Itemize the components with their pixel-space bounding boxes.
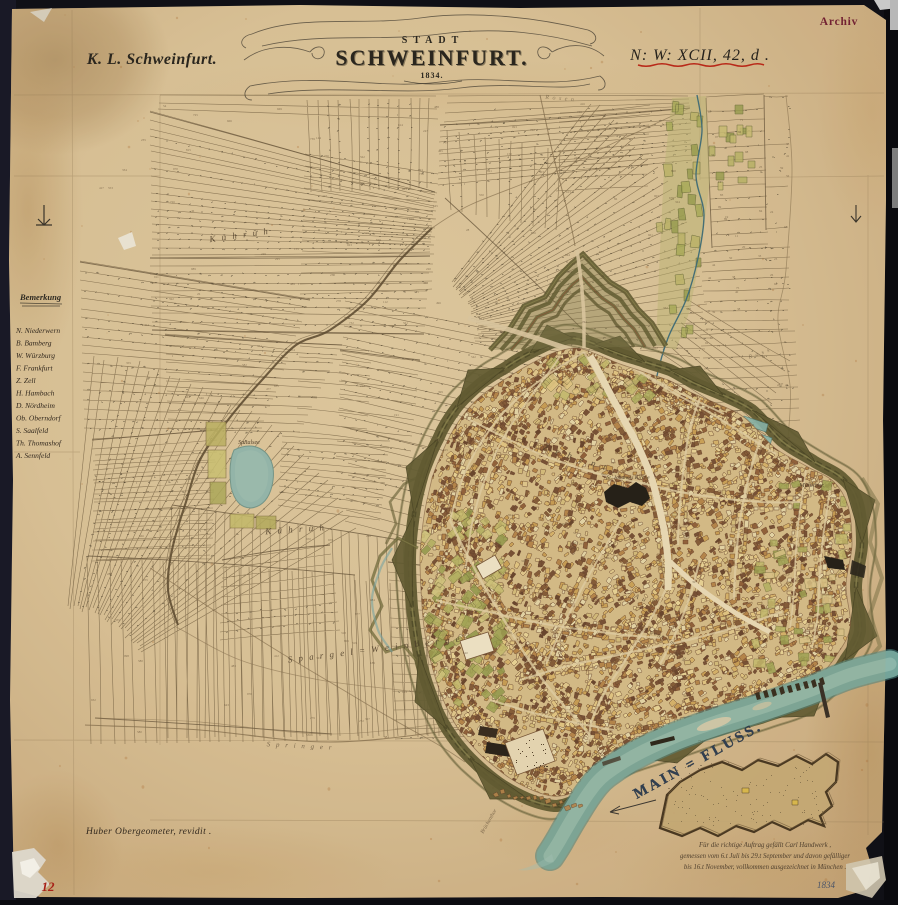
svg-text:N: W: XCII, 42, d .: N: W: XCII, 42, d .	[629, 47, 770, 64]
svg-text:12: 12	[42, 879, 56, 894]
svg-text:1834.: 1834.	[421, 71, 444, 80]
svg-text:SCHWEINFURT.: SCHWEINFURT.	[335, 45, 528, 70]
svg-text:Z. Zell: Z. Zell	[16, 376, 36, 385]
svg-text:S. Saalfeld: S. Saalfeld	[16, 426, 48, 435]
svg-text:bis 16.t November, vollkommen: bis 16.t November, vollkommen ausgezeich…	[684, 864, 847, 871]
svg-text:K. L. Schweinfurt.: K. L. Schweinfurt.	[86, 51, 217, 68]
svg-text:W. Würzburg: W. Würzburg	[16, 351, 55, 360]
svg-text:1834: 1834	[817, 880, 836, 890]
svg-text:N. Niederwern: N. Niederwern	[15, 326, 60, 335]
svg-text:Ob. Oberndorf: Ob. Oberndorf	[16, 414, 61, 423]
svg-text:Bemerkung: Bemerkung	[19, 292, 62, 302]
svg-text:A. Sennfeld: A. Sennfeld	[15, 451, 50, 460]
svg-text:gemessen vom 6.t Juli bis 29.t: gemessen vom 6.t Juli bis 29.t September…	[680, 853, 850, 860]
svg-text:F. Frankfurt: F. Frankfurt	[15, 364, 53, 373]
svg-text:Archiv: Archiv	[820, 16, 858, 28]
svg-text:Huber Obergeometer, revidit .: Huber Obergeometer, revidit .	[85, 827, 212, 837]
svg-text:D. Nördheim: D. Nördheim	[15, 401, 55, 410]
svg-text:H. Hambach: H. Hambach	[15, 389, 55, 398]
svg-text:Th. Thomashof: Th. Thomashof	[16, 439, 62, 448]
svg-text:B. Bamberg: B. Bamberg	[16, 339, 52, 348]
svg-text:Für die richtige Auftrag gefäl: Für die richtige Auftrag gefällt Carl Ha…	[698, 842, 831, 849]
